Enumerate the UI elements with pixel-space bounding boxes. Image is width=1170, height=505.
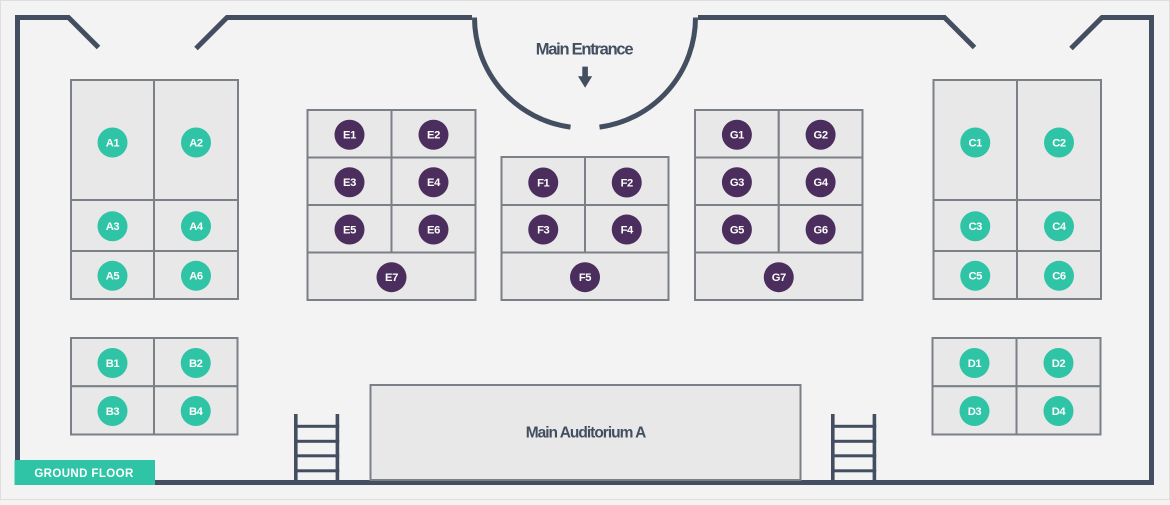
svg-text:C1: C1: [968, 137, 982, 149]
svg-text:G4: G4: [814, 177, 829, 189]
svg-text:A1: A1: [106, 137, 120, 149]
svg-text:G3: G3: [730, 177, 744, 189]
svg-text:C4: C4: [1052, 221, 1067, 233]
svg-text:F1: F1: [537, 177, 549, 189]
svg-text:C3: C3: [968, 221, 982, 233]
svg-text:F2: F2: [621, 177, 633, 189]
svg-text:A4: A4: [189, 221, 204, 233]
svg-text:E3: E3: [343, 177, 356, 189]
svg-text:F5: F5: [579, 272, 591, 284]
svg-text:B2: B2: [189, 358, 203, 370]
svg-text:C6: C6: [1052, 271, 1066, 283]
svg-text:F4: F4: [621, 224, 634, 236]
svg-text:G2: G2: [814, 130, 828, 142]
svg-text:GROUND FLOOR: GROUND FLOOR: [34, 468, 134, 480]
svg-text:B4: B4: [189, 406, 204, 418]
svg-text:E1: E1: [343, 130, 356, 142]
svg-text:G6: G6: [814, 224, 828, 236]
svg-text:G5: G5: [730, 224, 744, 236]
svg-text:A5: A5: [106, 271, 120, 283]
svg-text:G1: G1: [730, 130, 744, 142]
svg-text:Main Entrance: Main Entrance: [536, 41, 634, 59]
svg-text:D4: D4: [1052, 406, 1067, 418]
svg-text:E6: E6: [427, 224, 440, 236]
svg-text:B1: B1: [106, 358, 120, 370]
svg-text:G7: G7: [772, 272, 786, 284]
svg-text:E5: E5: [343, 224, 356, 236]
svg-text:D1: D1: [968, 358, 982, 370]
svg-text:E7: E7: [385, 272, 398, 284]
svg-text:Main Auditorium A: Main Auditorium A: [526, 425, 646, 442]
svg-text:C5: C5: [968, 271, 982, 283]
svg-text:A6: A6: [189, 271, 203, 283]
svg-text:A2: A2: [189, 137, 203, 149]
svg-text:B3: B3: [106, 406, 120, 418]
svg-text:C2: C2: [1052, 137, 1066, 149]
svg-text:D2: D2: [1052, 358, 1066, 370]
svg-text:E4: E4: [427, 177, 441, 189]
svg-text:A3: A3: [106, 221, 120, 233]
svg-text:D3: D3: [968, 406, 982, 418]
svg-text:F3: F3: [537, 224, 549, 236]
svg-text:E2: E2: [427, 130, 440, 142]
